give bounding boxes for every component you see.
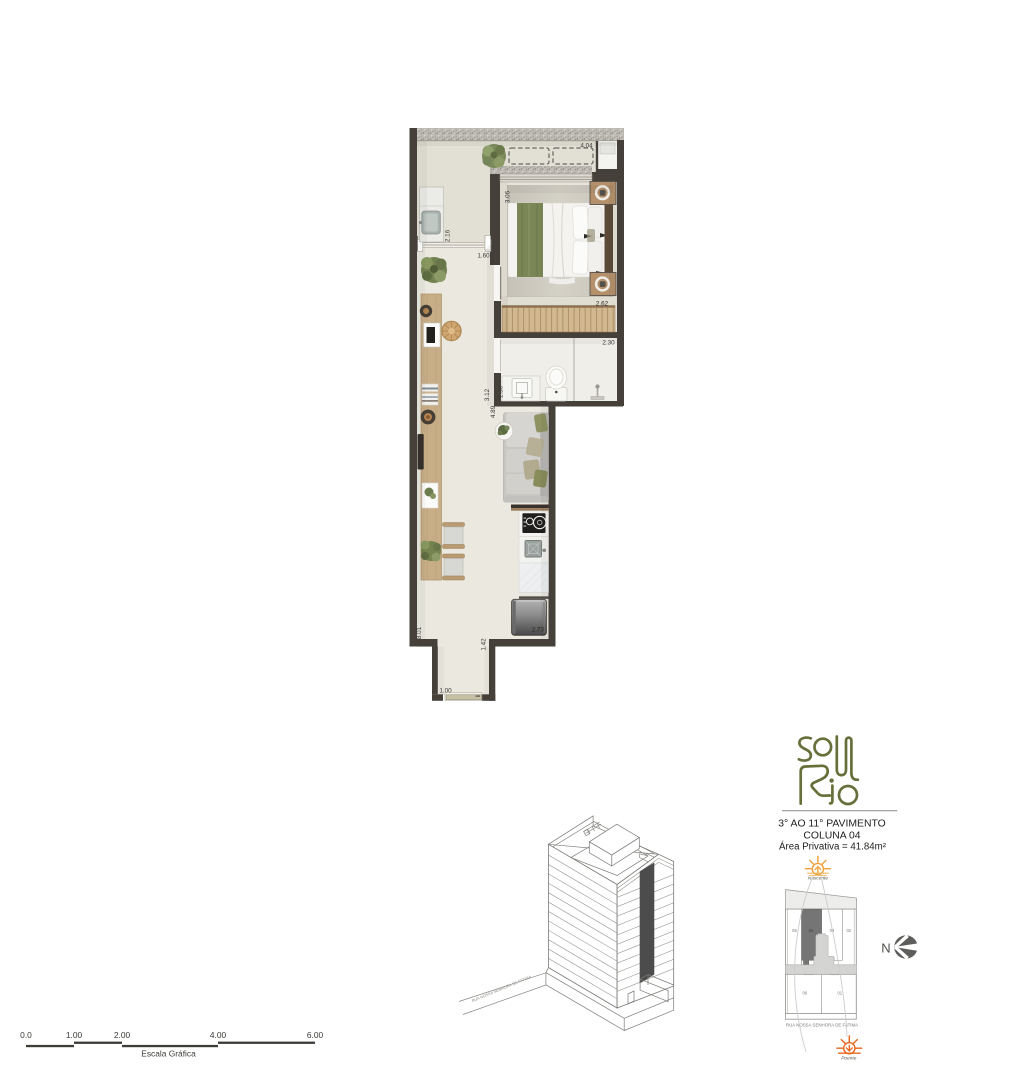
svg-text:2.62: 2.62	[596, 301, 609, 308]
svg-text:1.42: 1.42	[481, 638, 488, 651]
svg-text:2.73: 2.73	[532, 627, 545, 634]
svg-text:4.00: 4.00	[210, 1030, 227, 1040]
svg-text:06: 06	[802, 991, 807, 996]
svg-text:1.00: 1.00	[439, 688, 452, 695]
svg-text:04: 04	[809, 928, 814, 933]
svg-text:COLUNA 04: COLUNA 04	[803, 831, 860, 842]
svg-text:4.89: 4.89	[490, 405, 497, 418]
svg-text:2.16: 2.16	[445, 229, 452, 242]
svg-text:01: 01	[837, 991, 842, 996]
svg-text:Área Privativa = 41.84m²: Área Privativa = 41.84m²	[779, 842, 887, 853]
svg-text:0.0: 0.0	[20, 1030, 32, 1040]
svg-text:RUA NOSSA SENHORA DE FATIMA: RUA NOSSA SENHORA DE FATIMA	[786, 1023, 858, 1028]
svg-text:4.04: 4.04	[580, 143, 593, 150]
svg-text:6.00: 6.00	[307, 1030, 324, 1040]
svg-text:02: 02	[846, 928, 851, 933]
svg-text:1.60: 1.60	[477, 253, 490, 260]
svg-text:2.00: 2.00	[114, 1030, 131, 1040]
svg-text:Poente: Poente	[841, 1055, 857, 1061]
svg-text:N: N	[881, 941, 890, 956]
svg-text:1.00: 1.00	[66, 1030, 83, 1040]
svg-text:3° AO 11° PAVIMENTO: 3° AO 11° PAVIMENTO	[778, 819, 885, 830]
svg-text:2.30: 2.30	[602, 340, 615, 347]
svg-text:3.06: 3.06	[505, 190, 512, 203]
svg-text:Escala Gráfica: Escala Gráfica	[141, 1049, 196, 1059]
svg-text:1.30: 1.30	[498, 385, 505, 398]
svg-text:3.12: 3.12	[484, 388, 491, 401]
svg-text:05: 05	[792, 928, 797, 933]
svg-text:8.01: 8.01	[416, 626, 423, 639]
